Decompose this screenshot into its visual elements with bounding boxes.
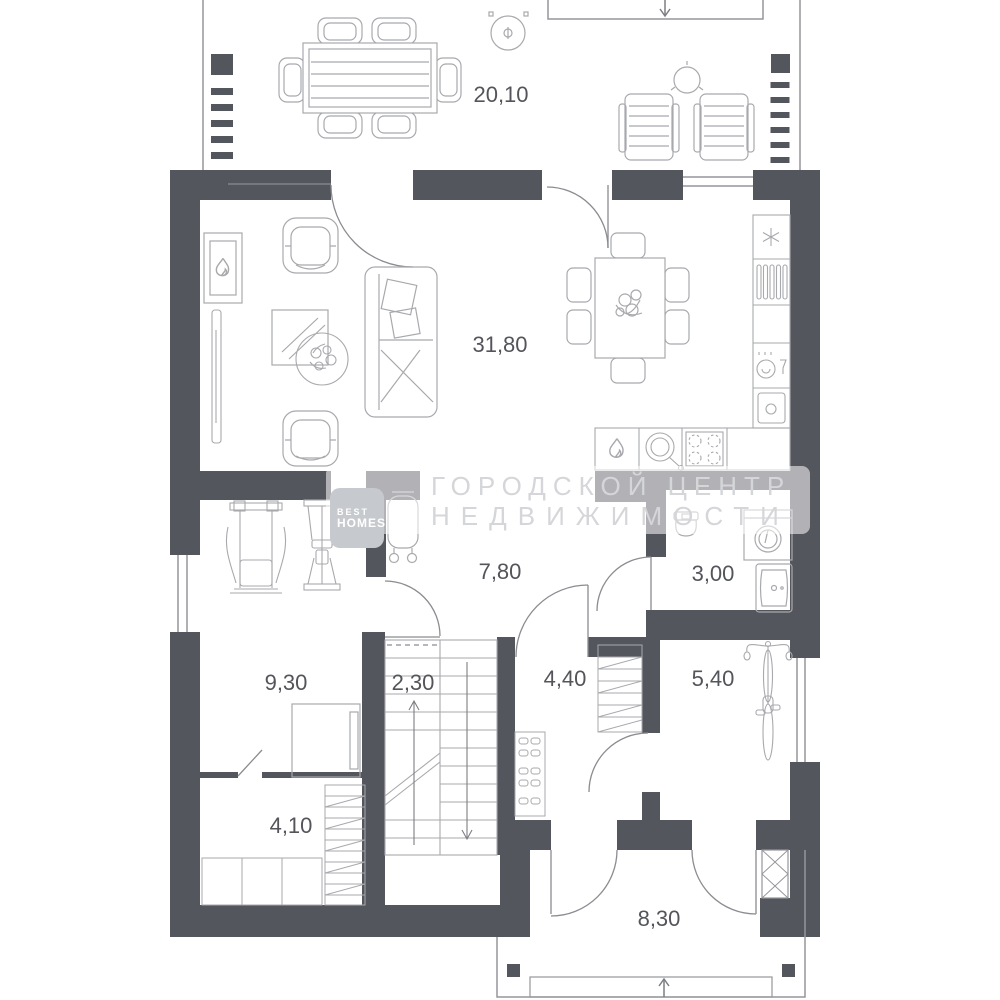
room-label-dressing-room: 4,10 xyxy=(270,813,313,839)
room-label-room-with-gym: 9,30 xyxy=(265,670,308,696)
desk xyxy=(292,704,360,777)
armchair-top xyxy=(283,218,338,273)
lounge-chairs xyxy=(619,61,754,160)
terrace-railing-right xyxy=(771,54,790,168)
room-label-hallway: 7,80 xyxy=(479,559,522,585)
stairs-down-arrow xyxy=(462,662,472,839)
door-hall-to-staircase xyxy=(385,581,440,645)
room-label-living-dining-room: 31,80 xyxy=(472,332,527,358)
shoe-rack xyxy=(515,732,545,816)
gym-machine-rack xyxy=(304,500,340,590)
stove-flame-icon xyxy=(610,439,623,458)
armchair-bottom xyxy=(283,411,338,466)
door-kitchen-to-terrace xyxy=(547,185,608,248)
bbq-grill-icon xyxy=(489,12,528,50)
fridge-snowflake-icon xyxy=(763,228,779,246)
terrace-dining-table xyxy=(279,18,461,138)
porch-step xyxy=(530,977,772,997)
door-bathroom xyxy=(597,557,651,611)
room-label-terrace: 20,10 xyxy=(473,82,528,108)
door-dressing-room xyxy=(238,750,262,776)
room-label-entry-hall: 4,40 xyxy=(544,666,587,692)
entrance-arrow-top xyxy=(660,0,670,16)
kitchen-sink-icon xyxy=(758,393,785,423)
porch-window xyxy=(762,850,788,898)
door-porch-right xyxy=(692,850,756,914)
garden-steps xyxy=(548,0,763,19)
dishwasher-icon xyxy=(757,352,786,378)
porch-pillar-right xyxy=(782,964,795,977)
entrance-arrow-bottom xyxy=(659,979,669,997)
room-label-staircase: 2,30 xyxy=(392,670,435,696)
sofa xyxy=(365,267,437,417)
door-entry-to-storage xyxy=(589,733,648,792)
pan-icon xyxy=(646,433,684,471)
stairs-up-arrow xyxy=(409,701,419,845)
terrace-railing-left xyxy=(211,54,233,168)
wardrobe-entry-hall xyxy=(598,645,642,732)
window-right-wall xyxy=(797,658,805,762)
side-table-icon xyxy=(674,67,700,93)
gym-machine-weights xyxy=(226,501,285,593)
bathroom-transom xyxy=(666,490,790,512)
bicycle-icon xyxy=(744,642,792,761)
bathroom-sink-icon xyxy=(756,564,792,612)
floor-plan-canvas: BEST HOMES ГОРОДСКОЙ ЦЕНТР НЕДВИЖИМОСТИ … xyxy=(0,0,1000,1000)
round-table-with-flowers xyxy=(296,333,348,385)
dining-table xyxy=(567,233,689,383)
wardrobe-dressing-room xyxy=(202,858,322,905)
bottle-rack-icon xyxy=(757,265,787,299)
door-hall-to-entry xyxy=(516,585,588,657)
window-top-wall xyxy=(683,177,753,186)
washing-machine-icon xyxy=(744,510,792,560)
room-label-porch: 8,30 xyxy=(638,906,681,932)
room-label-bathroom: 3,00 xyxy=(692,561,735,587)
clothes-rail-hatch xyxy=(325,785,365,905)
door-porch-left xyxy=(551,850,617,916)
window-left-wall xyxy=(178,555,187,632)
toilet-icon xyxy=(674,512,698,536)
walls xyxy=(170,170,820,937)
fireplace-icon xyxy=(204,233,242,303)
stroller-icon xyxy=(388,492,418,563)
room-label-storage-room: 5,40 xyxy=(692,666,735,692)
hob-icon xyxy=(686,432,723,466)
tv-icon xyxy=(212,310,221,443)
porch-pillar-left xyxy=(507,964,520,977)
floor-plan-drawing xyxy=(0,0,1000,1000)
